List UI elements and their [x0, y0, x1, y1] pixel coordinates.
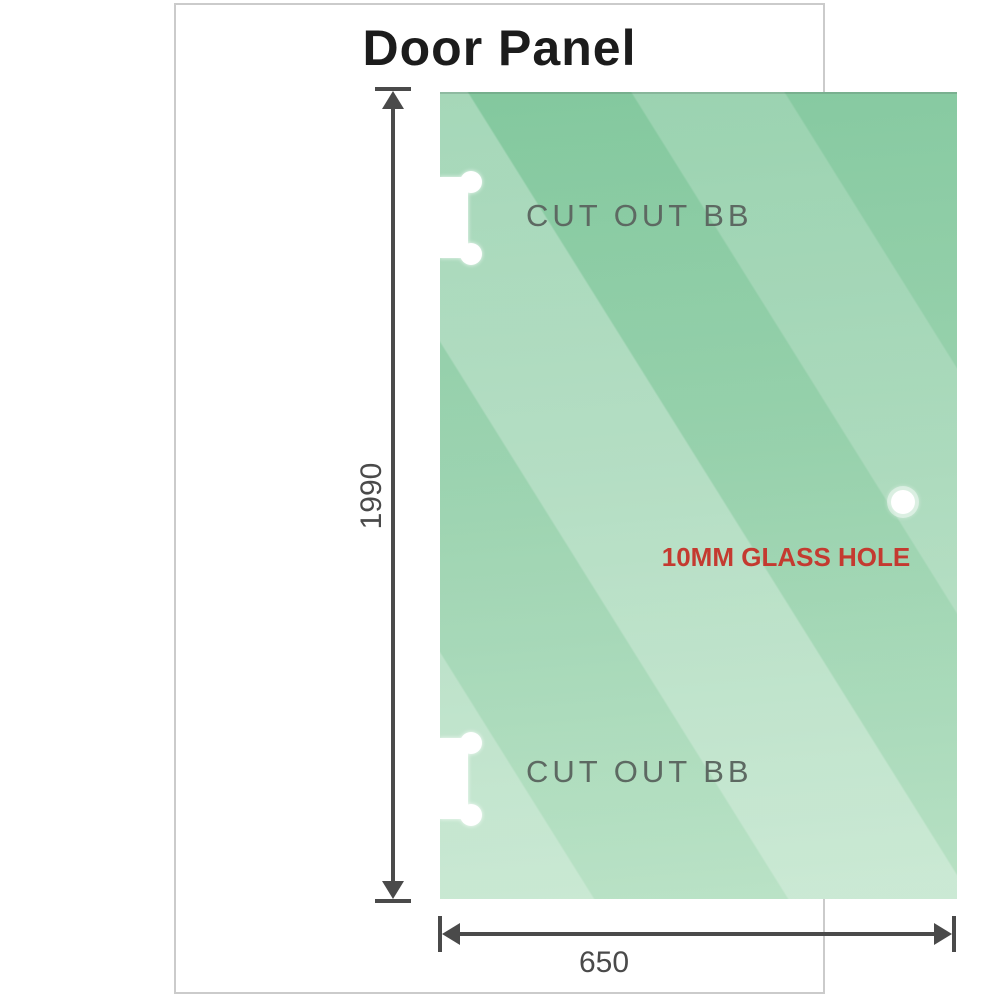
height-dim-arrow-down-icon	[382, 881, 404, 899]
height-dim-bottom-tick	[375, 899, 411, 903]
glass-hole-label: 10MM GLASS HOLE	[662, 542, 910, 573]
height-dim-line	[391, 105, 395, 883]
page-title: Door Panel	[176, 19, 823, 77]
width-dim-right-tick	[952, 916, 956, 952]
cutout-bottom-label: CUT OUT BB	[526, 754, 753, 790]
height-dim-label: 1990	[357, 446, 387, 546]
glass-hole	[891, 490, 915, 514]
cutout-top-label: CUT OUT BB	[526, 198, 753, 234]
cutout-bb-top-icon	[439, 170, 487, 266]
width-dim-arrow-right-icon	[934, 923, 952, 945]
cutout-bb-bottom-icon	[439, 731, 487, 827]
width-dim-line	[456, 932, 940, 936]
diagram-card: Door Panel CUT OUT BB CUT OUT BB 10MM GL…	[174, 3, 825, 994]
diagram-canvas: Door Panel CUT OUT BB CUT OUT BB 10MM GL…	[0, 0, 1000, 1000]
width-dim-label: 650	[544, 946, 664, 980]
